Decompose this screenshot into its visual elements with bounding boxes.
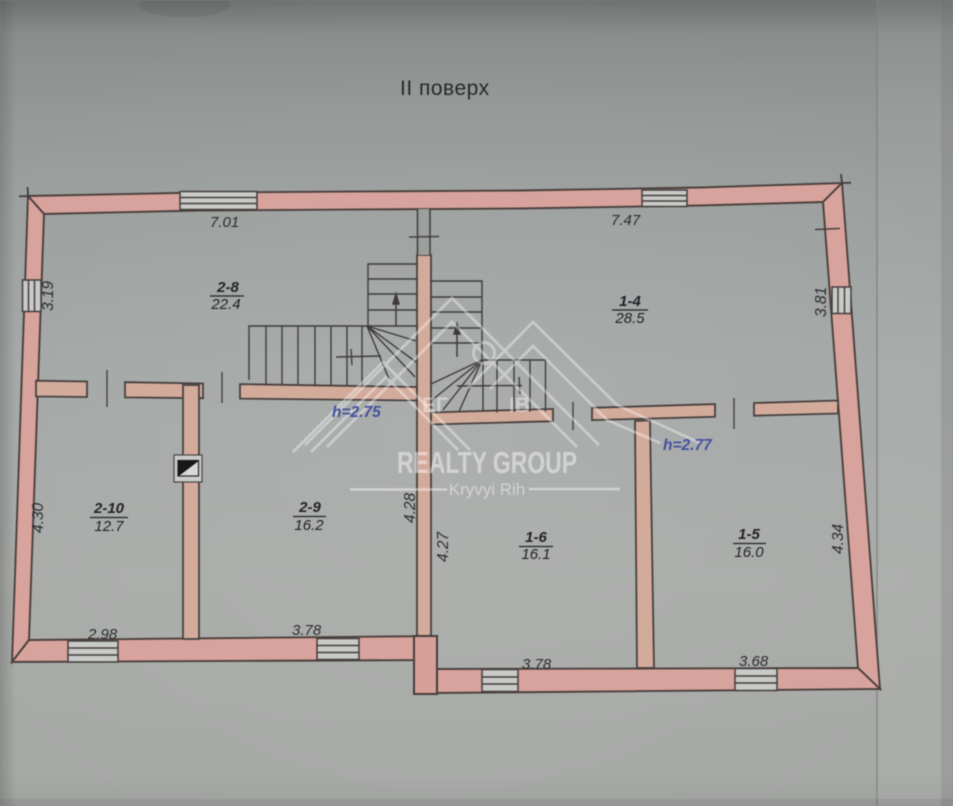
svg-text:3.68: 3.68 — [739, 653, 769, 670]
svg-text:7.47: 7.47 — [611, 212, 641, 229]
svg-text:II поверх: II поверх — [400, 77, 490, 100]
svg-text:2-9: 2-9 — [298, 499, 321, 516]
svg-text:4.28: 4.28 — [402, 492, 419, 523]
svg-text:1-4: 1-4 — [619, 293, 641, 310]
svg-text:4.27: 4.27 — [435, 530, 452, 562]
svg-text:h=2.75: h=2.75 — [332, 404, 381, 421]
svg-text:16.0: 16.0 — [734, 544, 764, 561]
svg-text:2.98: 2.98 — [87, 626, 118, 643]
svg-text:16.1: 16.1 — [521, 546, 550, 563]
svg-text:28.5: 28.5 — [614, 310, 645, 327]
svg-text:REALTY GROUP: REALTY GROUP — [397, 445, 577, 480]
svg-text:ІВ: ІВ — [509, 394, 530, 417]
svg-text:3.81: 3.81 — [813, 287, 830, 317]
svg-text:1-5: 1-5 — [738, 526, 760, 543]
svg-text:16.2: 16.2 — [294, 517, 324, 534]
svg-text:22.4: 22.4 — [210, 296, 240, 313]
svg-text:4.34: 4.34 — [830, 523, 847, 554]
svg-text:3.78: 3.78 — [522, 656, 552, 673]
svg-text:2-10: 2-10 — [93, 500, 125, 517]
svg-text:12.7: 12.7 — [94, 518, 124, 535]
svg-text:3.19: 3.19 — [40, 280, 57, 311]
svg-text:h=2.77: h=2.77 — [663, 437, 713, 454]
svg-text:1-6: 1-6 — [525, 529, 547, 546]
svg-text:4.30: 4.30 — [30, 502, 47, 533]
svg-text:ЕГ: ЕГ — [422, 394, 448, 417]
svg-text:Kryvyi Rih: Kryvyi Rih — [449, 480, 526, 499]
svg-text:3.78: 3.78 — [292, 622, 322, 639]
svg-text:7.01: 7.01 — [210, 214, 239, 231]
svg-text:2-8: 2-8 — [216, 279, 239, 296]
